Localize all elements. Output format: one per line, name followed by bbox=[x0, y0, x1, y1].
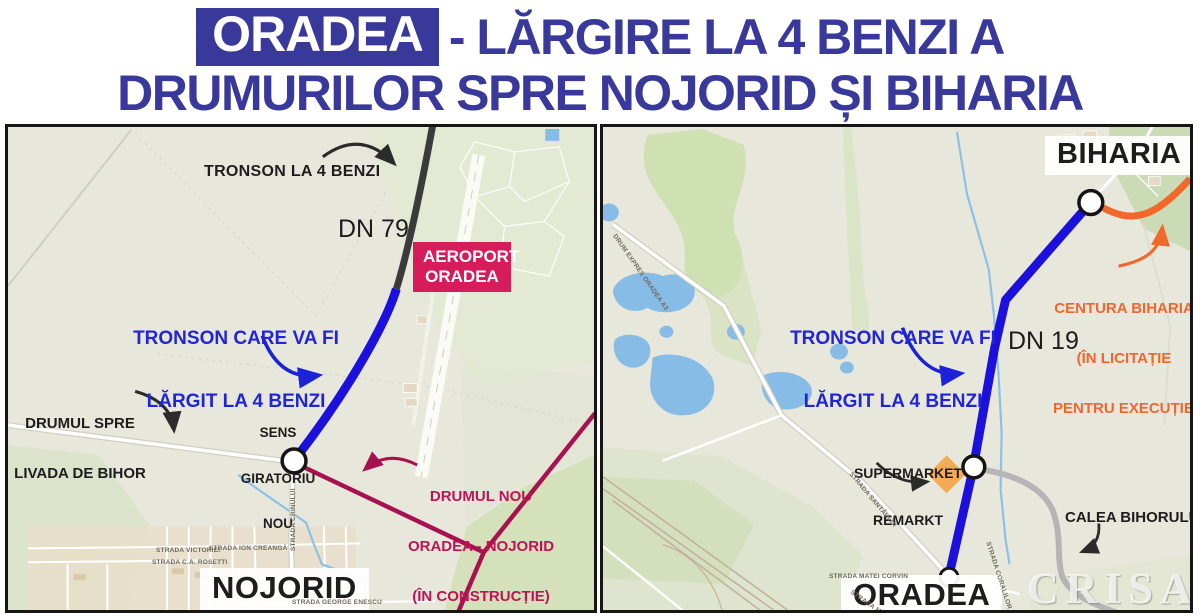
biharia-node bbox=[1079, 191, 1103, 215]
left-map-panel: TRONSON LA 4 BENZI DN 79 AEROPORT ORADEA… bbox=[5, 124, 597, 613]
oradea-town-label: ORADEA bbox=[841, 575, 1002, 613]
new-road-label: DRUMUL NOU ORADEA - NOJORID (ÎN CONSTRUC… bbox=[406, 455, 556, 613]
widen-label-right: TRONSON CARE VA FI LĂRGIT LA 4 BENZI bbox=[783, 285, 1003, 455]
street-enescu: STRADA GEORGE ENESCU bbox=[292, 599, 382, 606]
four-lane-label: TRONSON LA 4 BENZI bbox=[204, 163, 380, 181]
right-map-panel: BIHARIA TRONSON CARE VA FI LĂRGIT LA 4 B… bbox=[600, 124, 1193, 613]
street-creanga: STRADA ION CREANGĂ bbox=[209, 545, 287, 552]
airport-badge: AEROPORT ORADEA bbox=[413, 242, 511, 292]
infographic-page: ORADEA - LĂRGIRE LA 4 BENZI A DRUMURILOR… bbox=[0, 0, 1200, 616]
airport-badge-line2: ORADEA bbox=[423, 267, 501, 287]
crisana-watermark: CRISANA bbox=[1027, 563, 1193, 613]
biharia-town-label: BIHARIA bbox=[1045, 136, 1193, 175]
calea-label: CALEA BIHORULUI bbox=[1065, 510, 1193, 527]
title-highlight-badge: ORADEA bbox=[196, 8, 439, 66]
centura-label: CENTURA BIHARIA (ÎN LICITAȚIE PENTRU EXE… bbox=[1053, 267, 1193, 452]
street-crinului: STRADA CRINULUI bbox=[290, 488, 297, 551]
calea-arrow bbox=[1083, 524, 1099, 552]
roundabout-label: SENS GIRATORIU NOU bbox=[234, 395, 322, 561]
title-header: ORADEA - LĂRGIRE LA 4 BENZI A DRUMURILOR… bbox=[0, 0, 1200, 122]
title-line1-text: - LĂRGIRE LA 4 BENZI A bbox=[449, 8, 1004, 66]
street-matei-corvin: STRADA MATEI CORVIN bbox=[829, 573, 908, 580]
street-rosetti: STRADA C.A. ROSETTI bbox=[152, 559, 227, 566]
title-line-2: DRUMURILOR SPRE NOJORID ȘI BIHARIA bbox=[0, 68, 1200, 118]
left-small-pond bbox=[545, 129, 559, 141]
title-line-1: ORADEA - LĂRGIRE LA 4 BENZI A bbox=[0, 6, 1200, 68]
dn79-label: DN 79 bbox=[338, 215, 409, 243]
airport-badge-line1: AEROPORT bbox=[423, 247, 501, 267]
livada-label: DRUMUL SPRE LIVADA DE BIHOR bbox=[14, 382, 146, 516]
roundabout-marker-right bbox=[963, 456, 985, 478]
